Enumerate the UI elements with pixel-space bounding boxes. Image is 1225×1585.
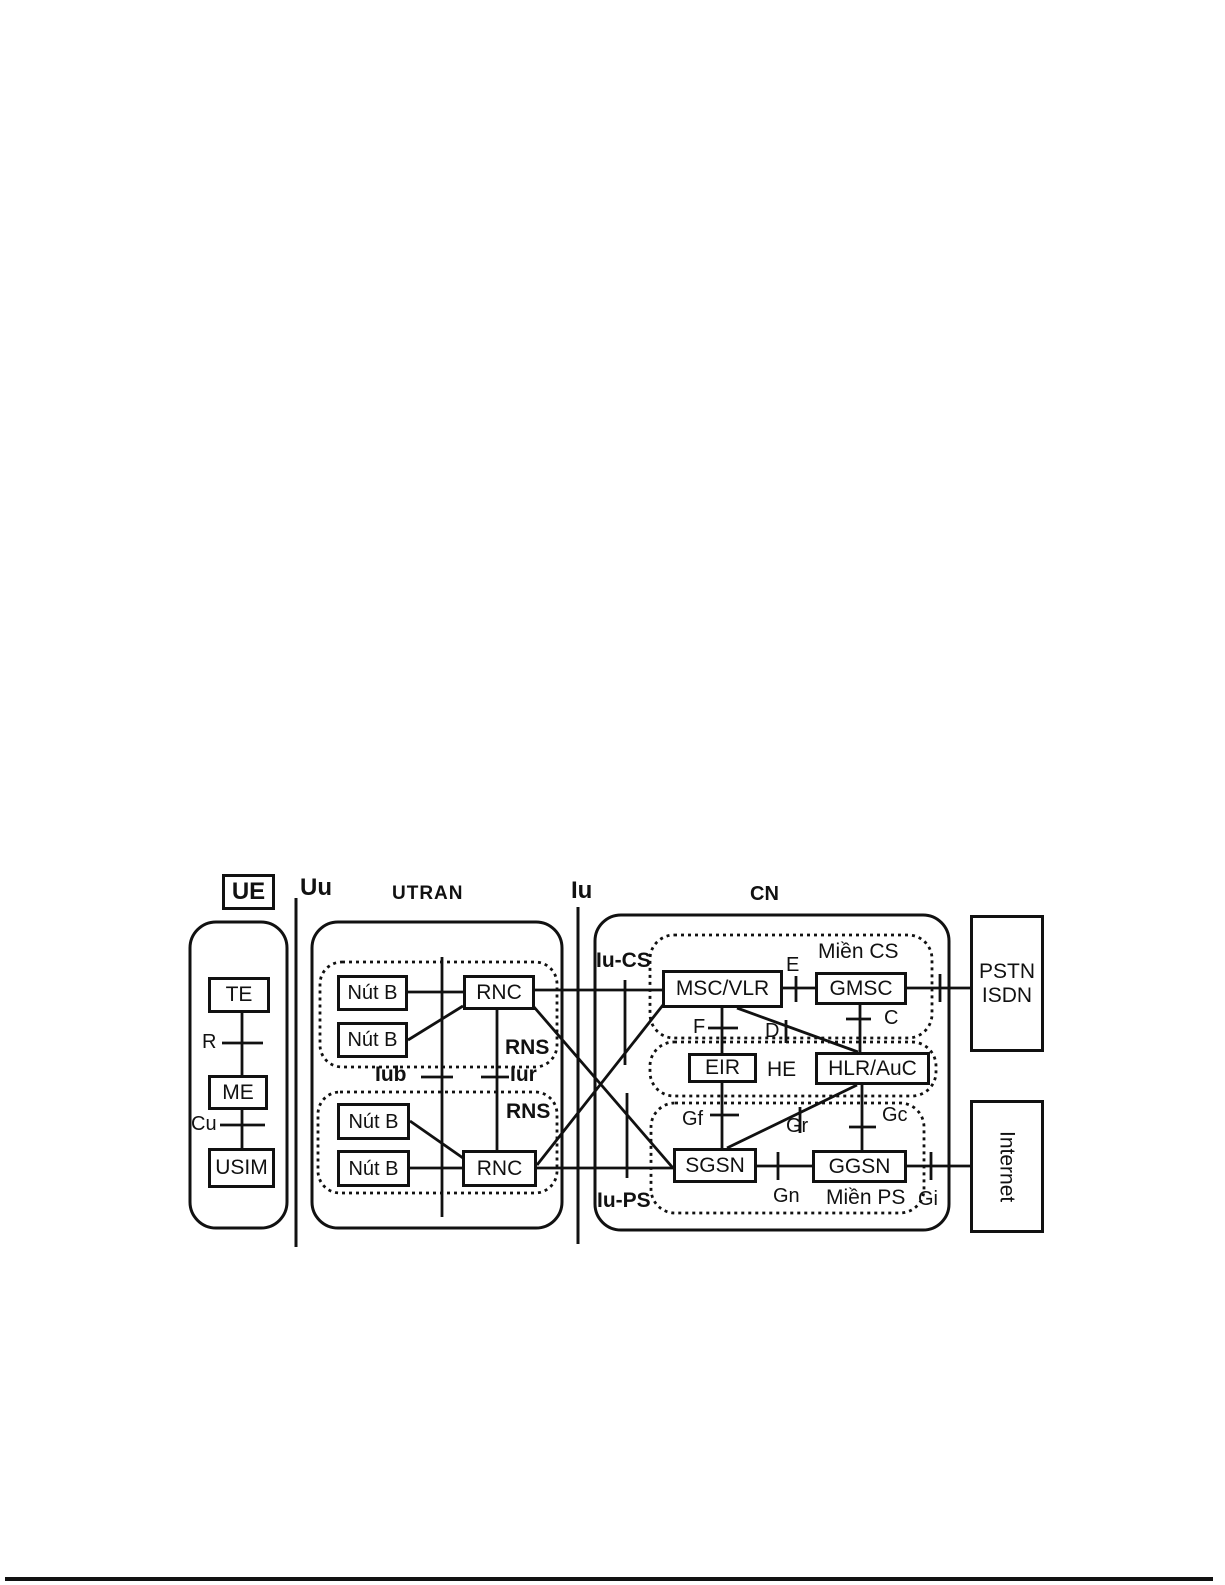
- pstn-label-line2: ISDN: [982, 984, 1032, 1007]
- sgsn-node: SGSN: [673, 1148, 757, 1183]
- pstn-label-line1: PSTN: [979, 960, 1035, 983]
- iub-interface-label: Iub: [375, 1064, 407, 1085]
- f-interface-label: F: [693, 1017, 705, 1037]
- e-interface-label: E: [786, 955, 799, 975]
- internet-label: Internet: [995, 1131, 1018, 1202]
- he-label: HE: [767, 1059, 796, 1080]
- internet-node: Internet: [970, 1100, 1044, 1233]
- nodeb1b-rnc1-link: [408, 1006, 463, 1040]
- gi-interface-label: Gi: [918, 1189, 938, 1209]
- cu-interface-label: Cu: [191, 1114, 217, 1134]
- iu-ps-interface-label: Iu-PS: [597, 1190, 651, 1211]
- msc-vlr-node: MSC/VLR: [662, 970, 783, 1008]
- ggsn-node: GGSN: [812, 1150, 907, 1183]
- cs-domain-label: Miền CS: [818, 941, 899, 962]
- node-b-1a: Nút B: [337, 975, 408, 1011]
- rnc-top-node: RNC: [463, 975, 535, 1010]
- te-node: TE: [208, 977, 270, 1013]
- iur-interface-label: Iur: [510, 1064, 537, 1085]
- usim-node: USIM: [208, 1148, 275, 1188]
- r-interface-label: R: [202, 1032, 216, 1052]
- page-bottom-rule: [5, 1577, 1213, 1581]
- rnc2-msc-link: [537, 1005, 663, 1165]
- nodeb2a-rnc2-link: [410, 1121, 463, 1158]
- ue-title-box: UE: [222, 874, 275, 910]
- rns-bottom-label: RNS: [506, 1101, 550, 1122]
- c-interface-label: C: [884, 1008, 898, 1028]
- gc-interface-label: Gc: [882, 1105, 908, 1125]
- eir-node: EIR: [688, 1053, 757, 1083]
- iu-cs-interface-label: Iu-CS: [596, 950, 651, 971]
- utran-title: UTRAN: [392, 884, 464, 903]
- gmsc-node: GMSC: [815, 972, 907, 1005]
- rns-top-label: RNS: [505, 1037, 549, 1058]
- ps-domain-label: Miền PS: [826, 1187, 905, 1208]
- document-page: UE Uu UTRAN Iu CN TE R ME Cu USIM Nút B …: [0, 0, 1225, 1585]
- rnc-bottom-node: RNC: [462, 1150, 537, 1187]
- d-interface-label: D: [765, 1021, 779, 1041]
- gr-interface-label: Gr: [786, 1116, 808, 1136]
- uu-interface-label: Uu: [300, 876, 332, 900]
- gf-interface-label: Gf: [682, 1109, 703, 1129]
- cn-title: CN: [750, 884, 779, 904]
- node-b-2b: Nút B: [337, 1150, 410, 1187]
- node-b-1b: Nút B: [337, 1022, 408, 1058]
- iu-interface-label: Iu: [571, 879, 592, 903]
- node-b-2a: Nút B: [337, 1103, 410, 1140]
- msc-hlr-link: [737, 1008, 858, 1052]
- gn-interface-label: Gn: [773, 1186, 800, 1206]
- hlr-auc-node: HLR/AuC: [815, 1052, 930, 1085]
- connector-lines: [0, 0, 1225, 1585]
- pstn-isdn-node: PSTN ISDN: [970, 915, 1044, 1052]
- me-node: ME: [208, 1075, 268, 1110]
